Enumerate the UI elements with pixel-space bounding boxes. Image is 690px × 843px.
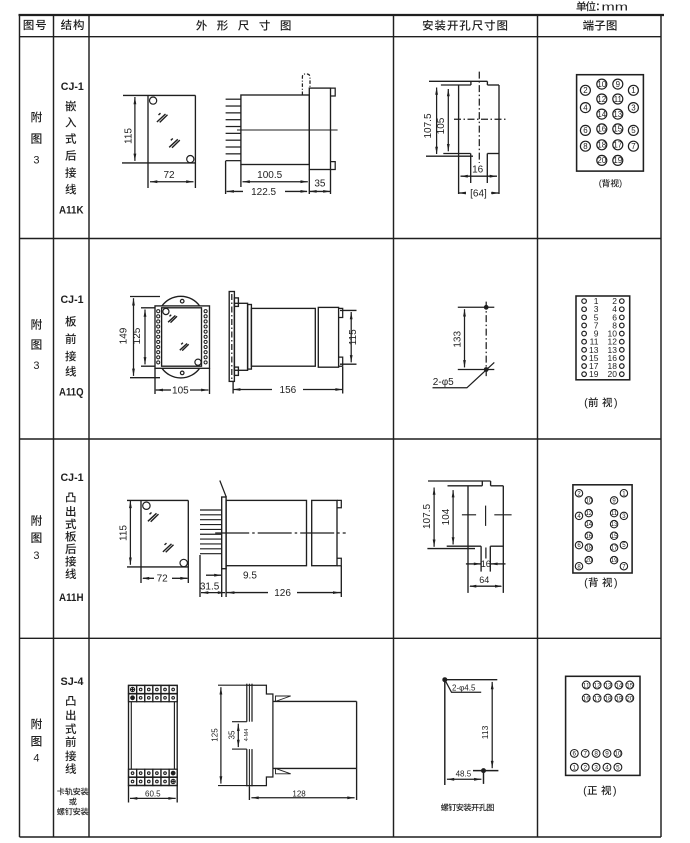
svg-text:16: 16 [472, 165, 484, 176]
svg-text:3: 3 [33, 550, 39, 562]
svg-text:125: 125 [210, 728, 219, 742]
svg-text:9.5: 9.5 [243, 570, 257, 581]
svg-text:10: 10 [597, 80, 606, 89]
svg-text:107.5: 107.5 [423, 113, 434, 138]
svg-text:156: 156 [280, 385, 297, 396]
svg-text:3: 3 [33, 154, 39, 166]
svg-text:115: 115 [118, 525, 129, 541]
svg-text:17: 17 [611, 546, 618, 552]
svg-text:20: 20 [597, 156, 606, 165]
svg-text:12: 12 [597, 95, 606, 104]
svg-text:4: 4 [605, 765, 609, 772]
svg-text:mm: mm [602, 1, 629, 13]
svg-text:[64]: [64] [470, 188, 487, 199]
svg-text:1: 1 [631, 86, 635, 95]
svg-text:15: 15 [613, 125, 622, 134]
svg-text:18: 18 [585, 546, 592, 552]
svg-text:15: 15 [626, 682, 634, 689]
svg-text:31.5: 31.5 [200, 581, 220, 592]
svg-text:6: 6 [583, 126, 588, 135]
svg-text:6: 6 [573, 751, 577, 758]
svg-text:35: 35 [314, 179, 326, 190]
svg-text:4: 4 [583, 103, 588, 112]
svg-text:11: 11 [611, 511, 618, 517]
svg-text:3: 3 [594, 765, 598, 772]
svg-text:(: ( [599, 178, 602, 188]
svg-text:12: 12 [594, 682, 602, 689]
svg-text:): ) [619, 178, 622, 188]
svg-text:A11K: A11K [59, 205, 84, 217]
svg-text:64: 64 [479, 575, 489, 585]
svg-text:2: 2 [583, 765, 587, 772]
svg-text:3: 3 [33, 360, 39, 372]
svg-text:4-M4: 4-M4 [244, 729, 250, 742]
svg-text:7: 7 [631, 142, 635, 151]
svg-text:48.5: 48.5 [456, 770, 472, 779]
svg-text:(: ( [584, 397, 588, 409]
svg-text:13: 13 [613, 110, 622, 119]
svg-text:A11H: A11H [59, 592, 84, 604]
svg-text:14: 14 [585, 522, 592, 528]
svg-text:128: 128 [292, 789, 306, 798]
svg-text:10: 10 [614, 751, 622, 758]
svg-text:CJ-1: CJ-1 [61, 81, 84, 93]
svg-text:14: 14 [615, 682, 623, 689]
svg-text:13: 13 [611, 522, 618, 528]
svg-text:16: 16 [583, 695, 591, 702]
svg-text:): ) [614, 397, 618, 409]
svg-text:12: 12 [585, 511, 592, 517]
svg-text:3: 3 [631, 103, 636, 112]
svg-text:SJ-4: SJ-4 [61, 676, 85, 688]
svg-text:19: 19 [611, 558, 618, 564]
svg-text:4: 4 [33, 752, 39, 764]
svg-text:122.5: 122.5 [251, 187, 276, 198]
svg-text:7: 7 [583, 751, 587, 758]
svg-text:149: 149 [119, 327, 130, 344]
svg-text:9: 9 [616, 80, 621, 89]
svg-text:126: 126 [274, 588, 291, 599]
svg-text:115: 115 [124, 128, 135, 144]
svg-text:19: 19 [589, 369, 599, 379]
svg-text:16: 16 [585, 534, 592, 540]
svg-text:133: 133 [452, 331, 463, 348]
svg-text:107.5: 107.5 [422, 504, 433, 529]
svg-text:113: 113 [480, 725, 490, 739]
svg-text:2-φ4.5: 2-φ4.5 [452, 684, 476, 693]
svg-text:104: 104 [441, 508, 452, 525]
svg-text:5: 5 [616, 765, 620, 772]
svg-text:CJ-1: CJ-1 [61, 472, 84, 484]
svg-text:9: 9 [605, 751, 609, 758]
svg-text:20: 20 [608, 369, 618, 379]
svg-text:5: 5 [631, 126, 636, 135]
svg-text:72: 72 [163, 170, 175, 181]
svg-text:125: 125 [132, 327, 143, 344]
svg-text:): ) [613, 785, 617, 797]
svg-text:115: 115 [348, 329, 359, 345]
svg-text:8: 8 [594, 751, 598, 758]
svg-text:14: 14 [597, 110, 606, 119]
svg-text:18: 18 [604, 695, 612, 702]
svg-text:11: 11 [583, 682, 590, 689]
svg-text:105: 105 [436, 117, 447, 134]
svg-text:60.5: 60.5 [145, 790, 161, 799]
svg-text:A11Q: A11Q [59, 386, 84, 398]
svg-text:1: 1 [573, 765, 577, 772]
svg-text:2-φ5: 2-φ5 [433, 377, 454, 388]
svg-text:CJ-1: CJ-1 [61, 294, 84, 306]
svg-text:8: 8 [583, 142, 588, 151]
svg-text:100.5: 100.5 [257, 170, 282, 181]
svg-text:105: 105 [172, 385, 189, 396]
svg-text:15: 15 [611, 534, 618, 540]
svg-text:16: 16 [597, 125, 606, 134]
svg-text:2: 2 [583, 86, 587, 95]
svg-text:35: 35 [228, 730, 237, 739]
svg-text:10: 10 [585, 499, 592, 505]
svg-text:(: ( [583, 785, 587, 797]
svg-text:20: 20 [626, 695, 634, 702]
svg-text:11: 11 [614, 95, 622, 104]
svg-text:16: 16 [481, 559, 491, 569]
svg-text:(: ( [584, 577, 588, 589]
svg-text:18: 18 [597, 141, 606, 150]
svg-text:19: 19 [613, 156, 622, 165]
svg-text:20: 20 [585, 558, 592, 564]
svg-text:72: 72 [157, 574, 169, 585]
svg-text:17: 17 [613, 141, 622, 150]
svg-text:13: 13 [604, 682, 612, 689]
svg-text:17: 17 [594, 695, 602, 702]
svg-text:): ) [614, 577, 618, 589]
svg-text:19: 19 [615, 695, 623, 702]
